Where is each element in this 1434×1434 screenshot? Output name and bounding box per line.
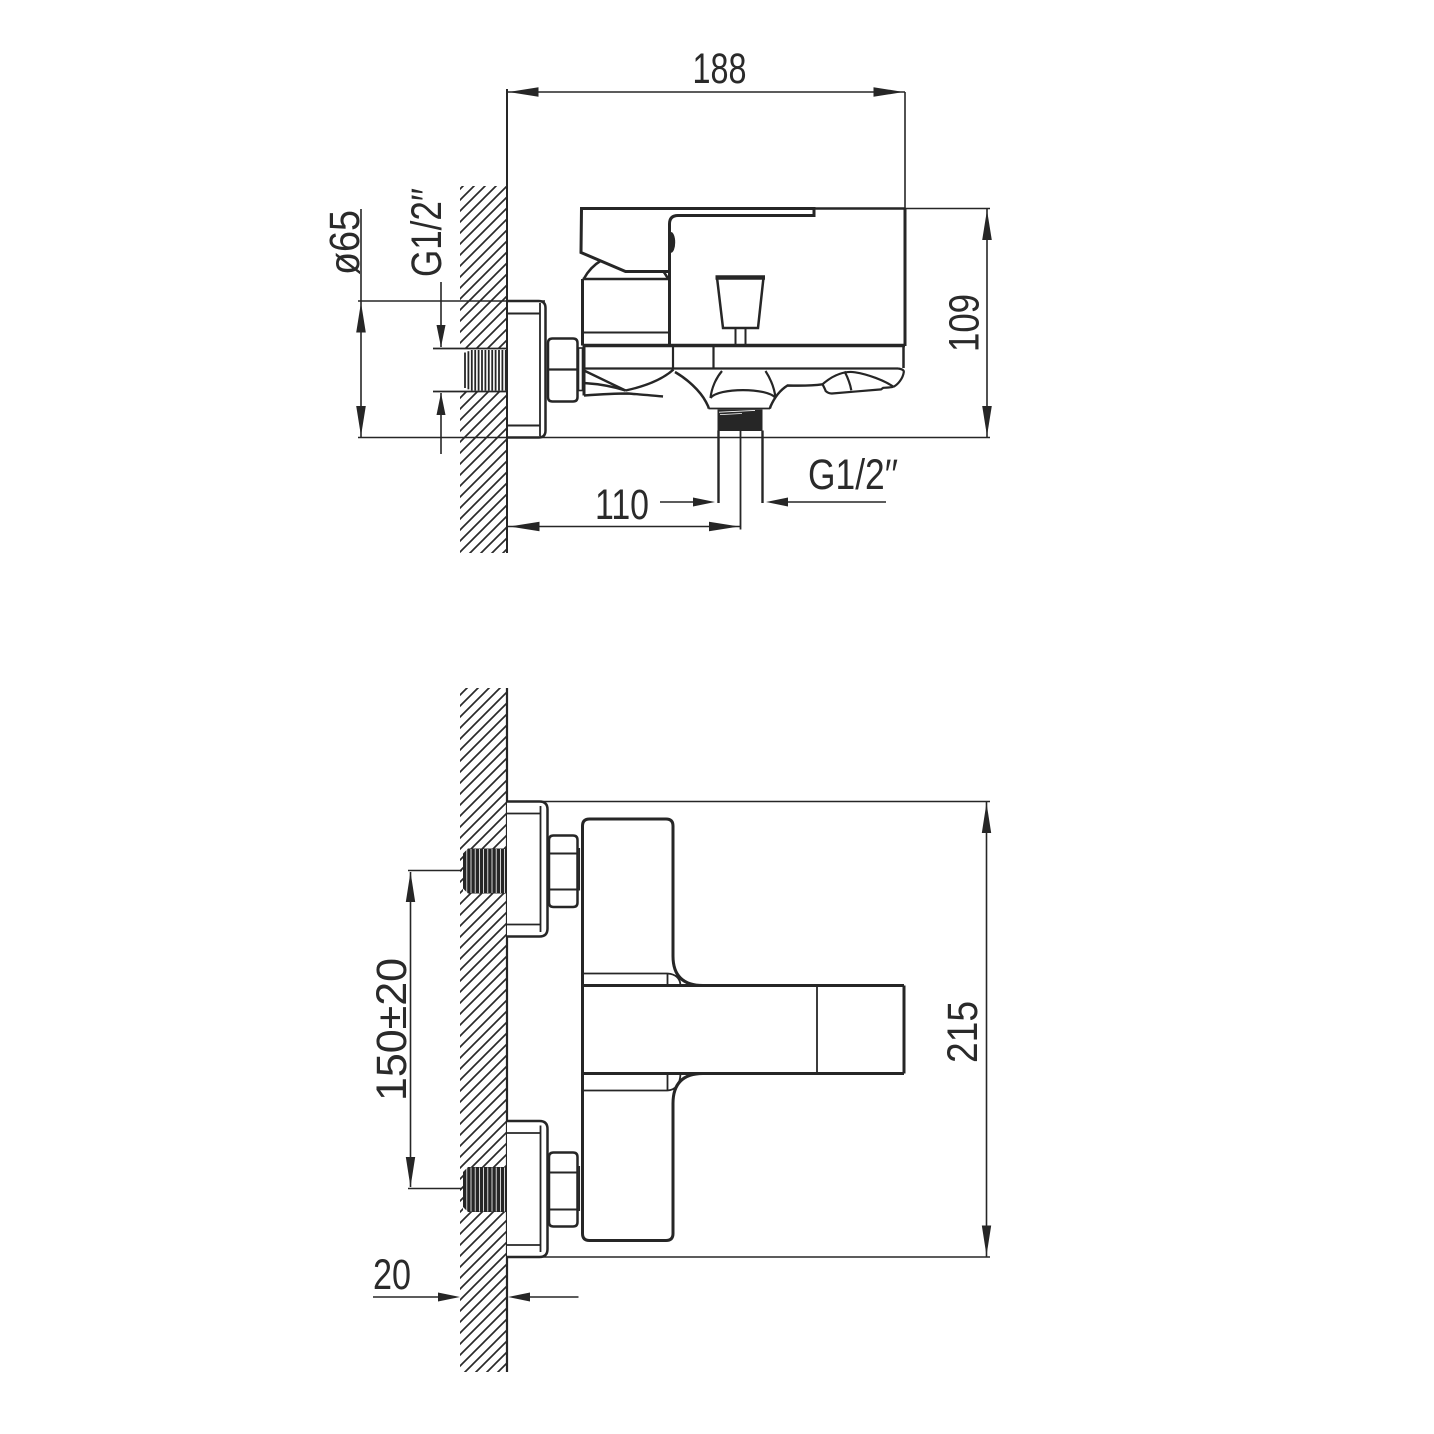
svg-text:G1/2′′: G1/2′′ [403, 188, 451, 277]
svg-text:150±20: 150±20 [368, 958, 416, 1101]
svg-text:110: 110 [595, 481, 649, 529]
svg-text:188: 188 [693, 45, 747, 93]
svg-text:215: 215 [939, 1001, 987, 1063]
svg-text:G1/2′′: G1/2′′ [808, 451, 898, 499]
svg-text:109: 109 [941, 294, 989, 352]
svg-text:ø65: ø65 [321, 210, 369, 275]
svg-text:20: 20 [373, 1251, 411, 1299]
